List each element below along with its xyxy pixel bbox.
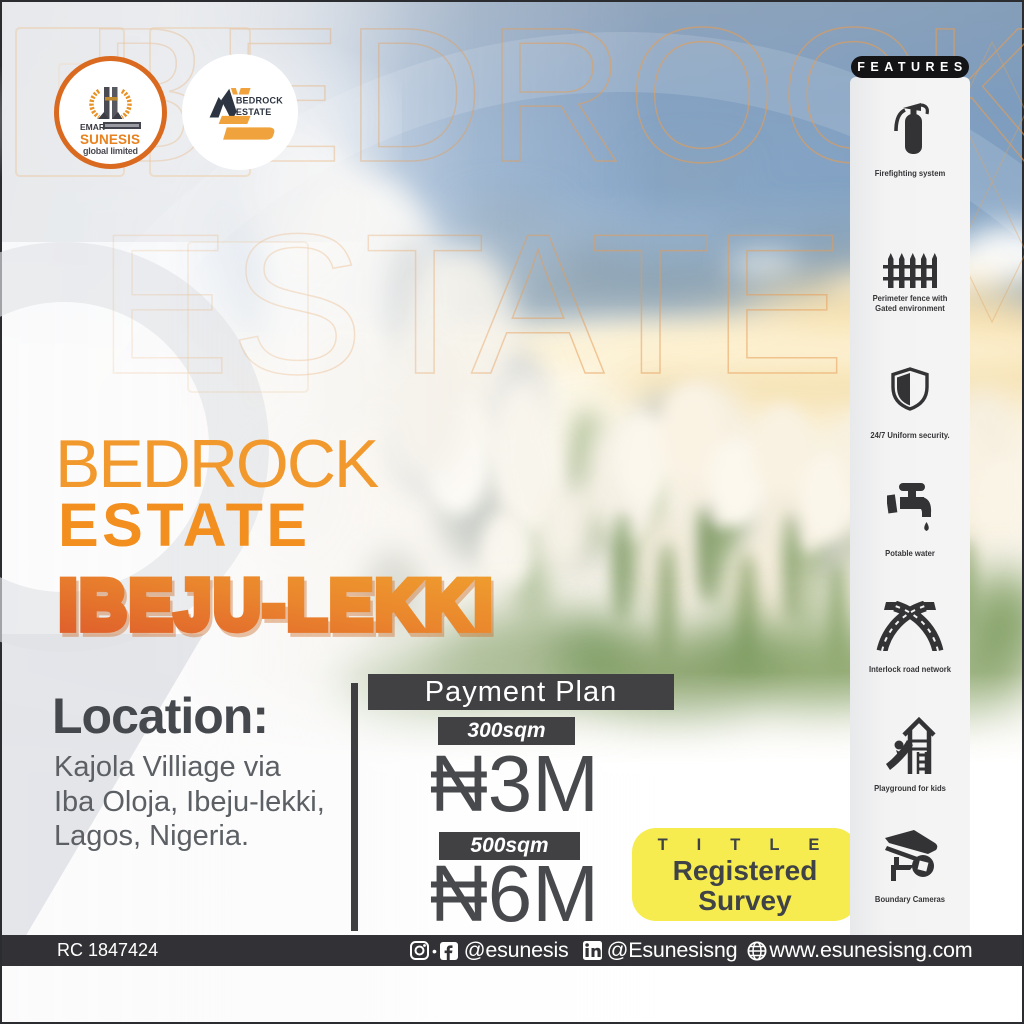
svg-text:BEDROCK: BEDROCK bbox=[236, 96, 283, 106]
svg-text:EMAR: EMAR bbox=[80, 122, 105, 132]
svg-text:SUNESIS: SUNESIS bbox=[80, 132, 140, 147]
svg-text:global limited: global limited bbox=[83, 146, 138, 156]
svg-text:IBEJU-LEKKI: IBEJU-LEKKI bbox=[59, 565, 494, 644]
svg-text:ESTATE: ESTATE bbox=[236, 107, 272, 117]
